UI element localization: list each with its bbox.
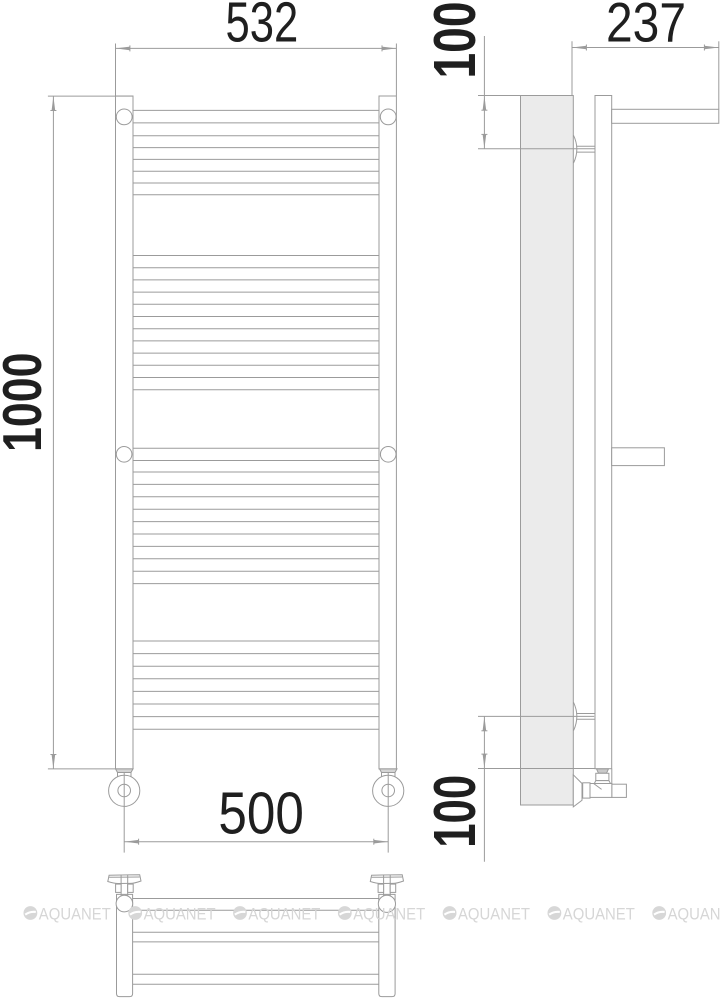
svg-text:AQUANET: AQUANET <box>353 904 425 923</box>
svg-text:AQUANET: AQUANET <box>144 904 216 923</box>
svg-text:AQUANET: AQUANET <box>458 904 530 923</box>
svg-text:500: 500 <box>218 780 304 847</box>
svg-text:AQUANET: AQUANET <box>563 904 635 923</box>
svg-text:AQUANET: AQUANET <box>39 904 111 923</box>
svg-text:532: 532 <box>226 0 299 55</box>
svg-text:237: 237 <box>606 0 686 54</box>
svg-text:AQUANET: AQUANET <box>668 904 720 923</box>
svg-text:AQUANET: AQUANET <box>248 904 320 923</box>
svg-text:100: 100 <box>421 775 488 848</box>
svg-text:100: 100 <box>421 2 488 79</box>
svg-text:1000: 1000 <box>0 353 53 453</box>
